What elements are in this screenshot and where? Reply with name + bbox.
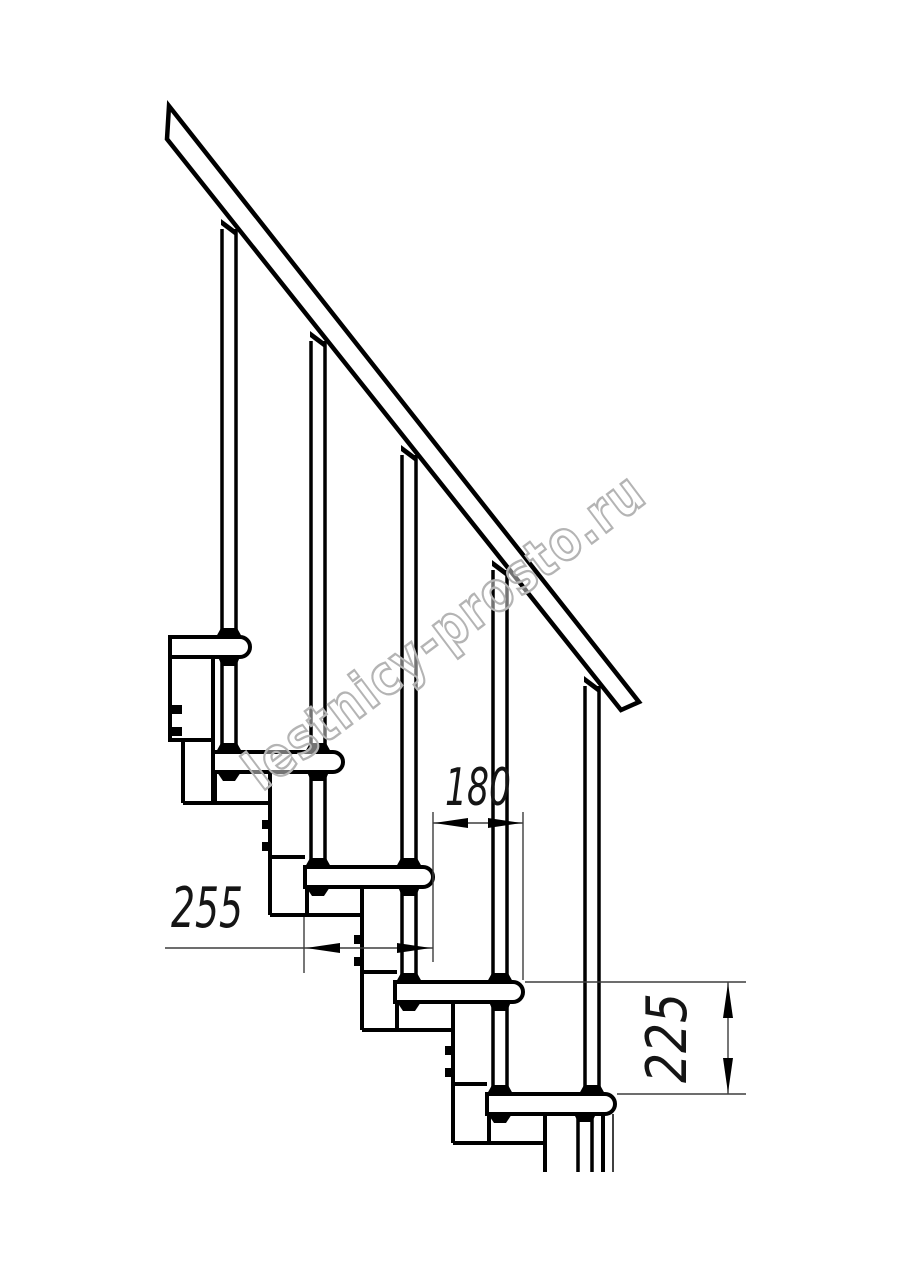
dimension-label-255: 255: [171, 876, 243, 941]
connector-tab: [445, 1068, 453, 1077]
dimension-label-180: 180: [445, 758, 511, 818]
arrowhead-left: [306, 943, 340, 953]
arrowhead-down: [723, 1058, 733, 1093]
connector-tab: [262, 842, 270, 851]
staircase-technical-drawing: 180 255 225 lestnicy-prosto.ru: [0, 0, 914, 1280]
tread-4: [395, 982, 523, 1002]
connector-tab: [262, 820, 270, 829]
dimension-going: 180: [433, 758, 523, 980]
post-1-2: [222, 660, 236, 746]
spine-module-4: [397, 1002, 545, 1143]
dimension-rise: 225: [525, 982, 746, 1094]
connector-tab: [354, 935, 362, 944]
arrowhead-right: [397, 943, 431, 953]
dimension-label-225: 225: [635, 993, 700, 1083]
tread-5: [487, 1094, 615, 1114]
baluster-feet: [216, 628, 605, 1094]
spine-module-3: [307, 887, 453, 1030]
tread-1: [170, 637, 250, 657]
post-2-3: [311, 775, 325, 861]
post-4-5: [493, 1005, 507, 1088]
connector-tab: [172, 727, 182, 736]
connector-tab: [172, 705, 182, 714]
tread-3: [305, 867, 433, 887]
baluster-5: [584, 676, 600, 1088]
watermark: lestnicy-prosto.ru: [231, 459, 657, 802]
arrowhead-up: [723, 983, 733, 1018]
connector-tab: [354, 957, 362, 966]
dimension-tread-depth: 255: [165, 876, 433, 973]
connector-tab: [445, 1046, 453, 1055]
arrowhead-right: [488, 818, 522, 828]
post-3-4: [402, 890, 416, 976]
post-below-bottom: [578, 1116, 592, 1172]
baluster-1: [221, 219, 237, 631]
arrowhead-left: [434, 818, 468, 828]
drawing-canvas: 180 255 225 lestnicy-prosto.ru: [0, 0, 914, 1280]
